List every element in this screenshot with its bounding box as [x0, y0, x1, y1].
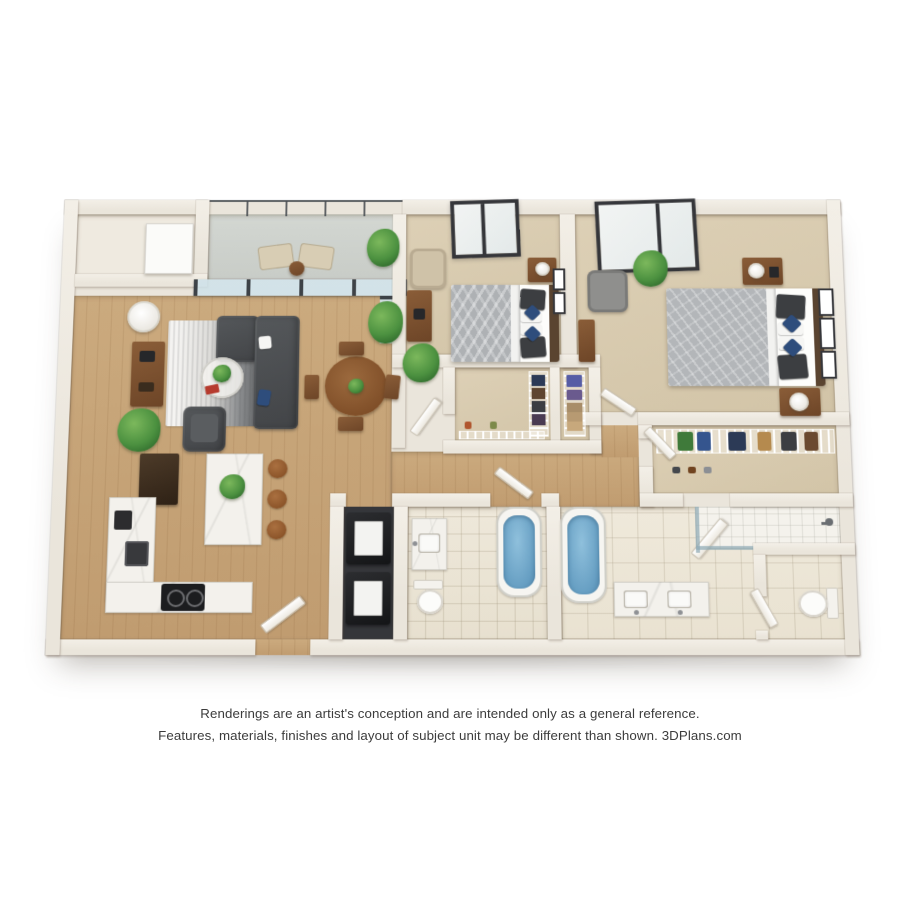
closet1-shelf-rack — [563, 371, 585, 436]
bath1-toilet-tank — [413, 580, 443, 590]
hallway-floor-vertical — [601, 425, 639, 457]
bath1-tub-water — [503, 515, 535, 588]
wall-closet1-left — [443, 367, 455, 414]
bedroom2-nightstand-bottom — [779, 388, 821, 416]
sofa-pillow-white — [258, 335, 272, 349]
sectional-sofa — [253, 316, 300, 429]
bedroom1-duvet — [451, 285, 511, 362]
wc-toilet-tank — [826, 588, 839, 619]
bath2-faucet-2 — [678, 610, 683, 615]
closet2-shoes-1 — [672, 467, 680, 474]
dryer — [345, 572, 390, 625]
bedroom1-armchair — [410, 249, 447, 289]
closet1-bin-purple — [567, 390, 583, 400]
media-console — [130, 342, 165, 407]
bedroom1-plant — [403, 343, 440, 382]
caption-line-2-text: Features, materials, finishes and layout… — [158, 728, 658, 743]
bedroom2-pillow-dark-2 — [777, 354, 809, 380]
disclaimer-caption: Renderings are an artist's conception an… — [0, 706, 900, 750]
bedroom2-wall-art-2 — [819, 318, 836, 349]
sofa-pillow-blue — [256, 389, 271, 406]
washer-lid — [354, 521, 383, 556]
bath2-faucet-1 — [634, 610, 639, 615]
bedroom1-wall-art-2 — [553, 292, 566, 314]
bedroom2-lamp-top — [748, 263, 765, 278]
wall-laundry-left — [328, 507, 344, 640]
bath2-sink-2 — [667, 591, 691, 609]
console-speaker — [139, 351, 155, 362]
brand-text: 3DPlans.com — [662, 728, 742, 743]
plant-by-doors — [368, 301, 403, 343]
wall-closet1-divider — [550, 367, 561, 440]
closet1-shoes-1 — [465, 422, 472, 430]
burner-1 — [167, 590, 185, 608]
bedroom1-desk — [407, 290, 432, 341]
bath1-toilet — [417, 590, 443, 614]
closet2-clothes-blue — [697, 432, 711, 451]
bath2-sink-1 — [624, 591, 648, 609]
floor-plan — [45, 173, 860, 665]
closet2-clothes-tan — [757, 432, 771, 451]
dining-chair-east — [384, 374, 401, 400]
wall-nook-bottom — [75, 274, 208, 287]
sliding-glass-doors — [194, 279, 407, 295]
balcony-glass-railing — [207, 200, 402, 216]
bedroom2-lamp-bottom — [789, 393, 809, 412]
shower-glass-door — [696, 546, 753, 550]
dining-chair-west — [304, 375, 319, 399]
bath1-sink — [418, 534, 440, 553]
bedroom2-plant — [633, 250, 668, 286]
closet1-clothes-charcoal — [532, 401, 546, 412]
dryer-lid — [354, 581, 383, 616]
wall-bath2-top-b — [730, 493, 853, 506]
armchair-cushion — [190, 414, 218, 442]
coffee-table-plant — [212, 365, 231, 383]
sofa-chaise — [216, 316, 260, 362]
dining-chair-north — [339, 342, 364, 356]
entry-storage-cabinet — [144, 223, 193, 274]
closet1-bin-blue — [566, 375, 582, 387]
bedroom1-wall-art-1 — [553, 268, 566, 290]
bedroom2-duvet — [666, 288, 769, 386]
wall-bottom-left — [45, 639, 255, 655]
bath2-double-vanity — [614, 582, 710, 617]
cooktop — [161, 584, 205, 611]
wall-bath2-top-a — [640, 493, 684, 506]
closet1-clothes-plum — [532, 414, 546, 425]
bath1-faucet — [413, 541, 418, 546]
wall-bath1-top-a — [330, 493, 346, 506]
coffee-maker — [114, 511, 132, 530]
wall-laundry-bath1 — [393, 507, 408, 640]
wall-bath1-top-c — [541, 493, 559, 506]
bath2-tub — [560, 507, 607, 603]
closet2-clothes-navy — [728, 432, 746, 451]
closet1-hanging-rack — [529, 371, 549, 436]
balcony-plant — [367, 229, 400, 267]
closet1-clothes-brown — [532, 388, 546, 399]
closet1-shoe-rack — [459, 431, 545, 439]
washer — [346, 512, 391, 564]
kitchen-island — [204, 454, 263, 546]
closet2-clothes-dark — [781, 432, 797, 451]
shower-head — [825, 518, 833, 526]
wc-toilet — [798, 591, 828, 617]
entry-door-threshold — [255, 639, 310, 655]
bedroom1-sheet-fold — [511, 285, 521, 362]
wall-bedroom1-bedroom2 — [560, 214, 577, 367]
caption-line-2: Features, materials, finishes and layout… — [0, 728, 900, 743]
wall-bath1-top-b — [392, 493, 490, 506]
bedroom2-wall-art-1 — [818, 288, 835, 315]
bedroom2-armchair — [587, 270, 628, 312]
closet2-shoes-2 — [688, 467, 696, 474]
bath1-tub — [496, 507, 542, 598]
bedroom1-bed — [451, 285, 559, 362]
bedroom2-bed — [666, 288, 826, 386]
closet2-hanging-rack — [656, 429, 835, 453]
island-plant — [219, 474, 245, 499]
wall-bottom-right — [310, 639, 859, 655]
wall-shower-wc — [753, 543, 855, 555]
bath1-vanity — [411, 518, 447, 570]
closet2-clothes-green — [677, 432, 693, 451]
bedroom2-wall-art-3 — [820, 351, 837, 379]
bedroom1-desk-item — [413, 309, 425, 320]
closet1-shoes-2 — [490, 422, 497, 430]
kitchen-sink — [124, 541, 149, 566]
closet2-shoes-3 — [704, 467, 712, 474]
bath2-tub-water — [567, 515, 600, 594]
caption-line-1: Renderings are an artist's conception an… — [0, 706, 900, 721]
bedroom1-window — [450, 199, 521, 259]
bedroom1-window-mullion — [481, 204, 487, 254]
bedroom2-books — [769, 267, 779, 278]
dining-chair-south — [338, 417, 363, 431]
wall-wc-left-b — [756, 631, 768, 640]
dining-centerpiece-plant — [348, 379, 364, 394]
wall-top-left — [64, 200, 207, 214]
closet1-boxes — [567, 403, 583, 431]
console-books — [138, 382, 154, 391]
burner-2 — [186, 590, 204, 608]
bedroom2-dresser — [578, 320, 595, 362]
living-armchair — [182, 407, 226, 452]
wall-closet1-bottom — [443, 440, 601, 453]
closet2-suitcase — [804, 432, 818, 451]
closet1-clothes-navy — [532, 375, 546, 386]
bedroom1-nightstand-vase — [535, 262, 550, 276]
bedroom2-nightstand-top — [742, 258, 783, 285]
